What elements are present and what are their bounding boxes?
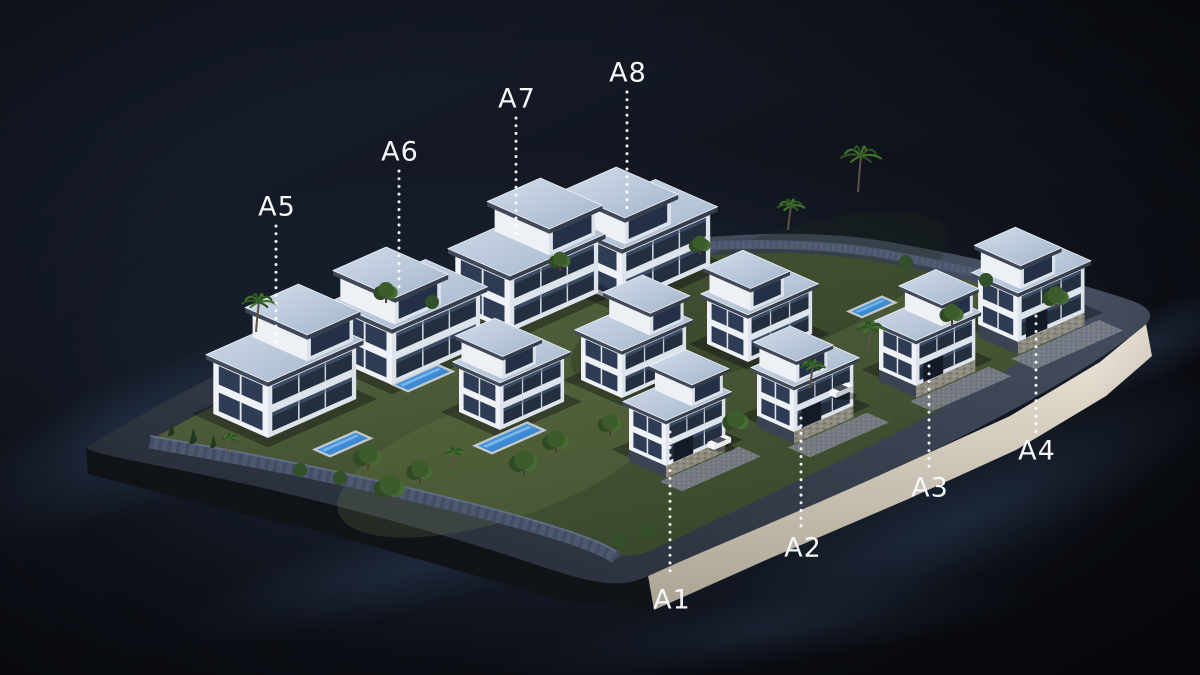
label-text-a3: A3 <box>911 473 949 504</box>
label-text-a6: A6 <box>381 137 419 168</box>
label-text-a8: A8 <box>609 58 647 89</box>
label-text-a4: A4 <box>1018 436 1056 467</box>
label-text-a2: A2 <box>784 533 822 564</box>
site-plan-render: A1A2A3A4A5A6A7A8 <box>0 0 1200 675</box>
development-render-stage: A1A2A3A4A5A6A7A8 <box>0 0 1200 675</box>
label-text-a1: A1 <box>653 585 691 616</box>
vignette-overlay <box>0 0 1200 675</box>
label-text-a7: A7 <box>498 84 536 115</box>
label-text-a5: A5 <box>258 192 296 223</box>
